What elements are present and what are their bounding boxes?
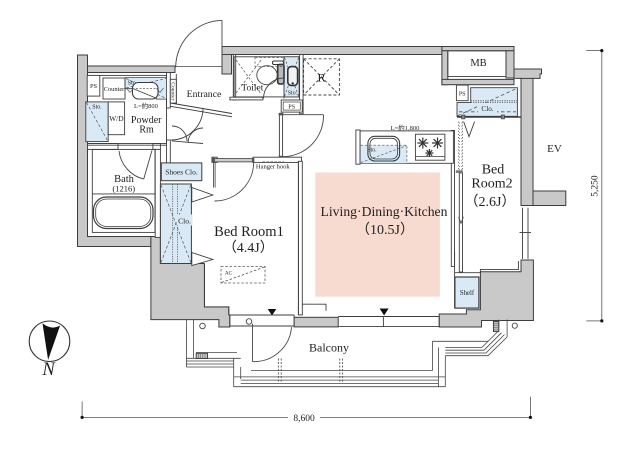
svg-text:（4.4J）: （4.4J） bbox=[223, 240, 274, 256]
svg-text:Shoes Clo.: Shoes Clo. bbox=[165, 167, 198, 176]
svg-text:Living·Dining·Kitchen: Living·Dining·Kitchen bbox=[321, 204, 448, 219]
svg-text:Sto.: Sto. bbox=[288, 91, 298, 97]
svg-text:Sto.: Sto. bbox=[367, 148, 377, 154]
svg-text:Rm: Rm bbox=[139, 124, 154, 135]
svg-text:L=約800: L=約800 bbox=[134, 101, 158, 110]
svg-text:Toilet: Toilet bbox=[241, 84, 263, 94]
svg-text:W/D: W/D bbox=[109, 114, 124, 123]
svg-text:Bed Room1: Bed Room1 bbox=[214, 224, 284, 240]
svg-text:Clo.: Clo. bbox=[178, 217, 191, 226]
svg-text:Sto.: Sto. bbox=[92, 105, 102, 111]
svg-text:（2.6J）: （2.6J） bbox=[465, 194, 516, 210]
svg-text:Counter: Counter bbox=[104, 86, 125, 93]
svg-text:8,600: 8,600 bbox=[293, 414, 315, 424]
svg-text:Counter: Counter bbox=[170, 82, 176, 100]
svg-text:(1216): (1216) bbox=[112, 184, 135, 194]
svg-text:PS: PS bbox=[288, 104, 295, 111]
svg-text:R: R bbox=[317, 71, 325, 85]
svg-text:（10.5J）: （10.5J） bbox=[356, 222, 414, 238]
svg-text:PS: PS bbox=[459, 91, 466, 97]
svg-text:PS: PS bbox=[90, 83, 98, 90]
svg-text:Entrance: Entrance bbox=[187, 89, 222, 100]
svg-text:Room2: Room2 bbox=[471, 177, 512, 192]
svg-text:Bed: Bed bbox=[482, 163, 505, 178]
svg-text:5,250: 5,250 bbox=[591, 175, 601, 197]
svg-text:EV: EV bbox=[547, 143, 562, 155]
svg-text:Balcony: Balcony bbox=[309, 340, 349, 354]
svg-text:Hanger hook: Hanger hook bbox=[256, 164, 291, 171]
svg-text:MB: MB bbox=[470, 58, 486, 69]
svg-text:Shelf: Shelf bbox=[460, 290, 475, 297]
svg-text:N: N bbox=[41, 360, 56, 380]
svg-text:AC: AC bbox=[225, 271, 233, 277]
svg-text:Clo.: Clo. bbox=[481, 105, 493, 113]
